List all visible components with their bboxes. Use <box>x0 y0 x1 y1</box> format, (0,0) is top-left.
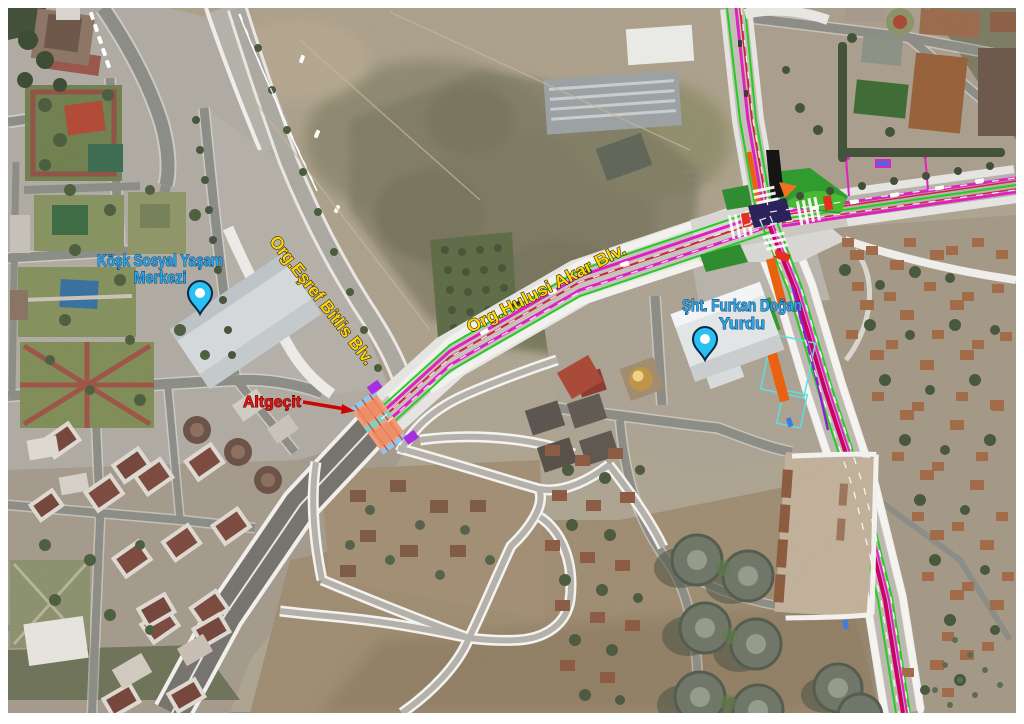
svg-text:Altgeçit: Altgeçit <box>243 394 302 411</box>
svg-text:Köşk Sosyal Yaşam: Köşk Sosyal Yaşam <box>97 252 223 270</box>
svg-text:Yurdu: Yurdu <box>719 315 765 333</box>
svg-text:Şht. Furkan Doğan: Şht. Furkan Doğan <box>682 297 802 315</box>
svg-text:Merkezi: Merkezi <box>134 269 187 287</box>
